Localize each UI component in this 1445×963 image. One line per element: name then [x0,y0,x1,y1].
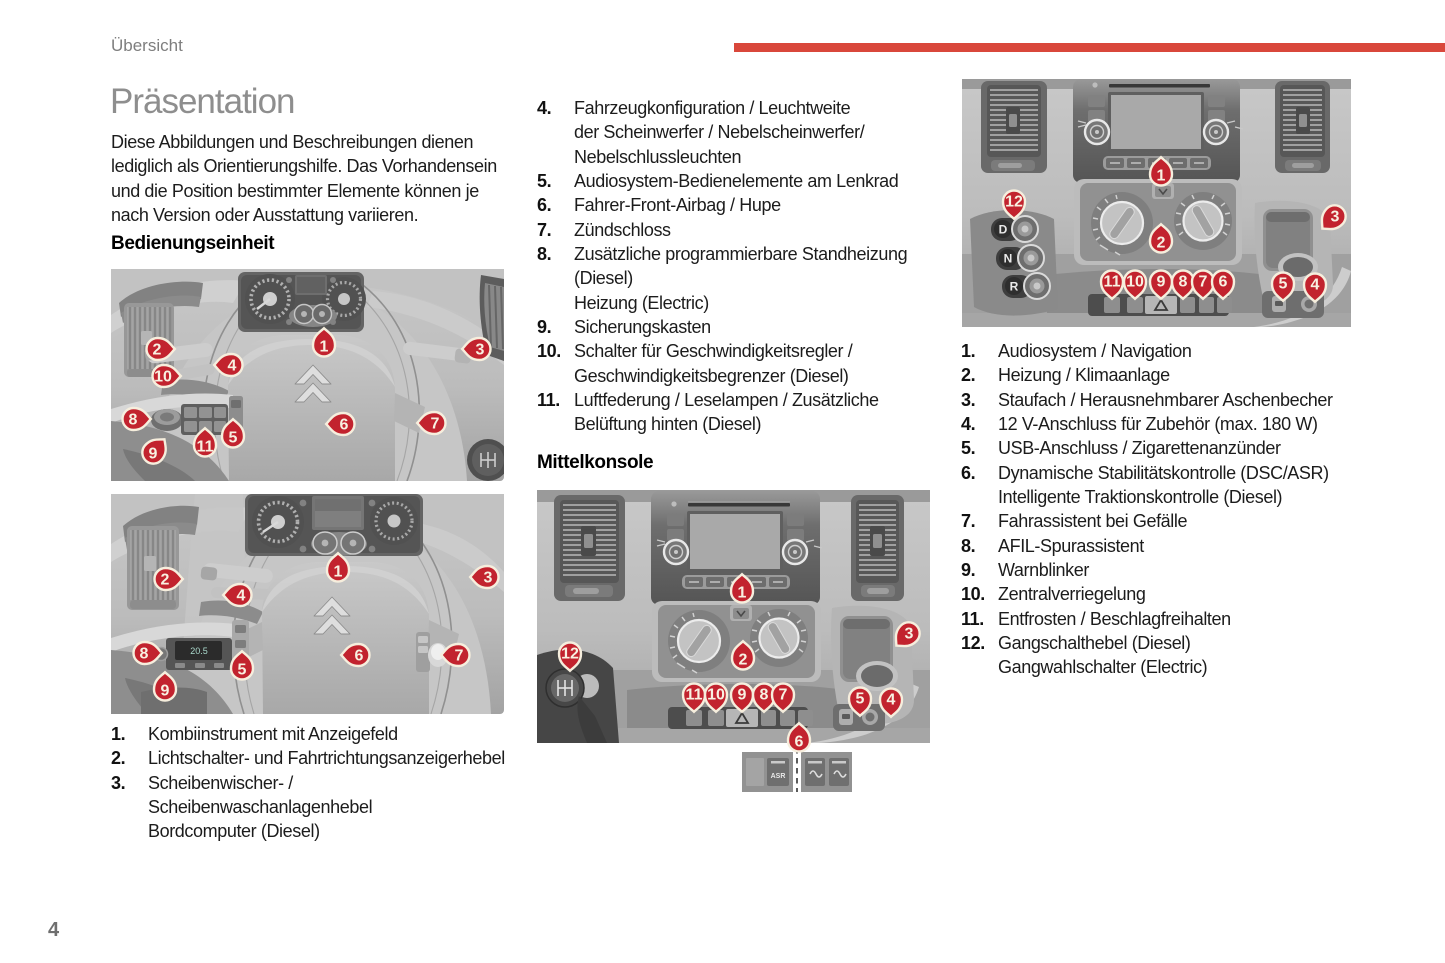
svg-text:1: 1 [1157,168,1166,185]
svg-text:ASR: ASR [771,773,786,780]
svg-text:4: 4 [887,692,896,709]
svg-text:1: 1 [738,585,747,602]
svg-text:6: 6 [355,648,364,665]
svg-text:11: 11 [1104,274,1121,291]
svg-text:2: 2 [1157,235,1166,252]
svg-text:N: N [1004,252,1013,266]
svg-text:6: 6 [340,417,349,434]
svg-text:7: 7 [779,687,788,704]
svg-text:12: 12 [1005,194,1023,211]
svg-text:11: 11 [197,439,214,456]
svg-text:2: 2 [739,652,748,669]
svg-text:9: 9 [738,687,747,704]
svg-text:20.5: 20.5 [190,646,208,656]
svg-text:3: 3 [476,342,485,359]
svg-text:2: 2 [153,342,162,359]
svg-text:9: 9 [1157,274,1166,291]
svg-text:3: 3 [905,626,914,643]
svg-text:D: D [999,223,1008,237]
svg-text:5: 5 [238,662,247,679]
svg-text:5: 5 [1279,276,1288,293]
svg-text:8: 8 [140,646,149,663]
svg-text:8: 8 [129,412,138,429]
svg-text:5: 5 [856,691,865,708]
svg-text:3: 3 [484,570,493,587]
svg-text:1: 1 [334,564,343,581]
svg-text:2: 2 [161,572,170,589]
svg-text:12: 12 [561,646,579,663]
svg-text:6: 6 [795,734,804,751]
svg-text:10: 10 [1126,274,1144,291]
svg-text:5: 5 [229,430,238,447]
svg-text:10: 10 [154,369,172,386]
svg-text:7: 7 [431,416,440,433]
svg-text:9: 9 [161,683,170,700]
svg-text:6: 6 [1219,274,1228,291]
svg-text:4: 4 [228,358,237,375]
svg-text:11: 11 [686,687,703,704]
svg-text:1: 1 [320,339,329,356]
svg-text:8: 8 [1179,274,1188,291]
svg-text:10: 10 [707,687,725,704]
svg-text:4: 4 [1311,277,1320,294]
svg-text:8: 8 [760,687,769,704]
svg-text:9: 9 [149,446,158,463]
svg-text:7: 7 [455,648,464,665]
svg-text:3: 3 [1331,209,1340,226]
svg-text:R: R [1010,280,1019,294]
svg-text:4: 4 [237,588,246,605]
svg-text:7: 7 [1199,274,1208,291]
